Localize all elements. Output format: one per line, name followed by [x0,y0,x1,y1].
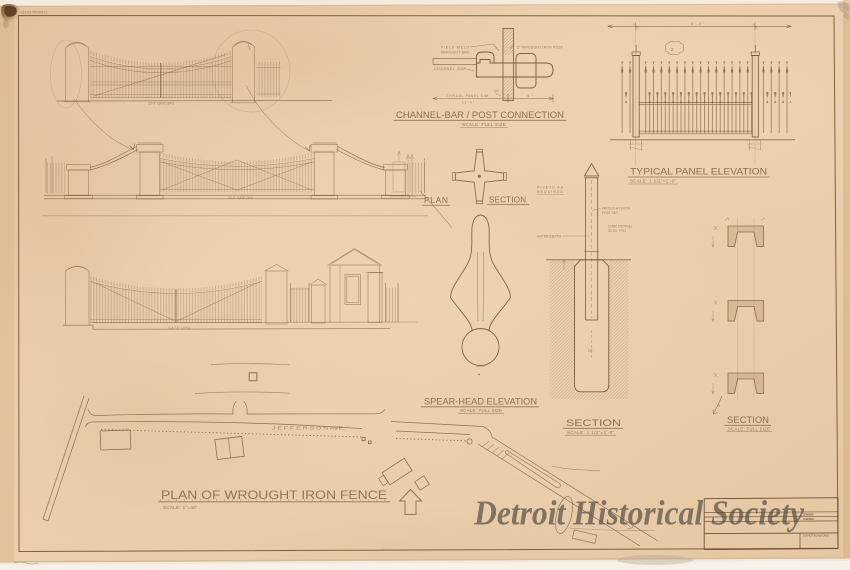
svg-text:SECTION: SECTION [489,196,526,205]
svg-text:SCALE: 1"=40': SCALE: 1"=40' [163,505,197,510]
svg-text:SECTION: SECTION [727,415,769,425]
svg-text:DO NOT SCALE DWG: DO NOT SCALE DWG [803,534,830,538]
svg-text:GATE OPG: GATE OPG [168,326,191,330]
svg-text:FIELD WELD: FIELD WELD [441,46,470,50]
svg-text:2" WROUGHT IRON POST: 2" WROUGHT IRON POST [517,46,563,50]
svg-text:12": 12" [588,349,593,353]
svg-text:4'-0" MIN DEPTH: 4'-0" MIN DEPTH [537,235,562,239]
svg-text:3000 PSI: 3000 PSI [608,229,626,233]
svg-text:3: 3 [718,404,720,408]
svg-text:SPEAR-HEAD ELEVATION: SPEAR-HEAD ELEVATION [424,397,537,407]
svg-text:1/2: 1/2 [494,89,499,93]
svg-text:24'-0" GATE OPG: 24'-0" GATE OPG [228,196,254,200]
svg-text:REQUIRED: REQUIRED [537,190,564,194]
svg-text:TYPICAL PANEL ELEVATION: TYPICAL PANEL ELEVATION [630,167,767,178]
svg-text:12'-0" GATE OPG: 12'-0" GATE OPG [148,102,174,106]
svg-text:SCALE: FULL SIZE: SCALE: FULL SIZE [462,122,506,127]
svg-text:DRAWN BY: DRAWN BY [803,513,814,517]
svg-text:J E F F E R S O N AVE.: J E F F E R S O N AVE. [272,426,345,431]
svg-text:TYPICAL PANEL DIM: TYPICAL PANEL DIM [446,94,488,98]
svg-text:SCALE: 1 1/2"=1'-0": SCALE: 1 1/2"=1'-0" [567,430,614,435]
svg-text:SCALE: 1 1/2"=1'-0": SCALE: 1 1/2"=1'-0" [630,179,676,184]
svg-text:SECTION: SECTION [566,418,621,429]
svg-text:CHANNEL-BAR: CHANNEL-BAR [434,67,467,71]
svg-text:12'-0": 12'-0" [462,101,474,105]
svg-text:PLAN: PLAN [424,195,448,205]
svg-text:SCALE: FULL SIZE: SCALE: FULL SIZE [728,426,770,431]
svg-text:Detroit Historical Society: Detroit Historical Society [473,495,805,533]
svg-text:8'-0": 8'-0" [691,22,705,26]
svg-text:SCALE: FULL SIZE: SCALE: FULL SIZE [460,408,502,413]
svg-text:WROUGHT BAR: WROUGHT BAR [441,51,470,55]
svg-text:CHECKED: CHECKED [803,517,814,521]
svg-text:POST SET: POST SET [602,211,618,215]
svg-text:WROUGHT IRON FENCE: WROUGHT IRON FENCE [21,11,48,15]
svg-text:PLAN OF WROUGHT IRON FENCE: PLAN OF WROUGHT IRON FENCE [161,488,387,502]
svg-text:CHANNEL-BAR / POST CONNECTION: CHANNEL-BAR / POST CONNECTION [396,110,564,121]
